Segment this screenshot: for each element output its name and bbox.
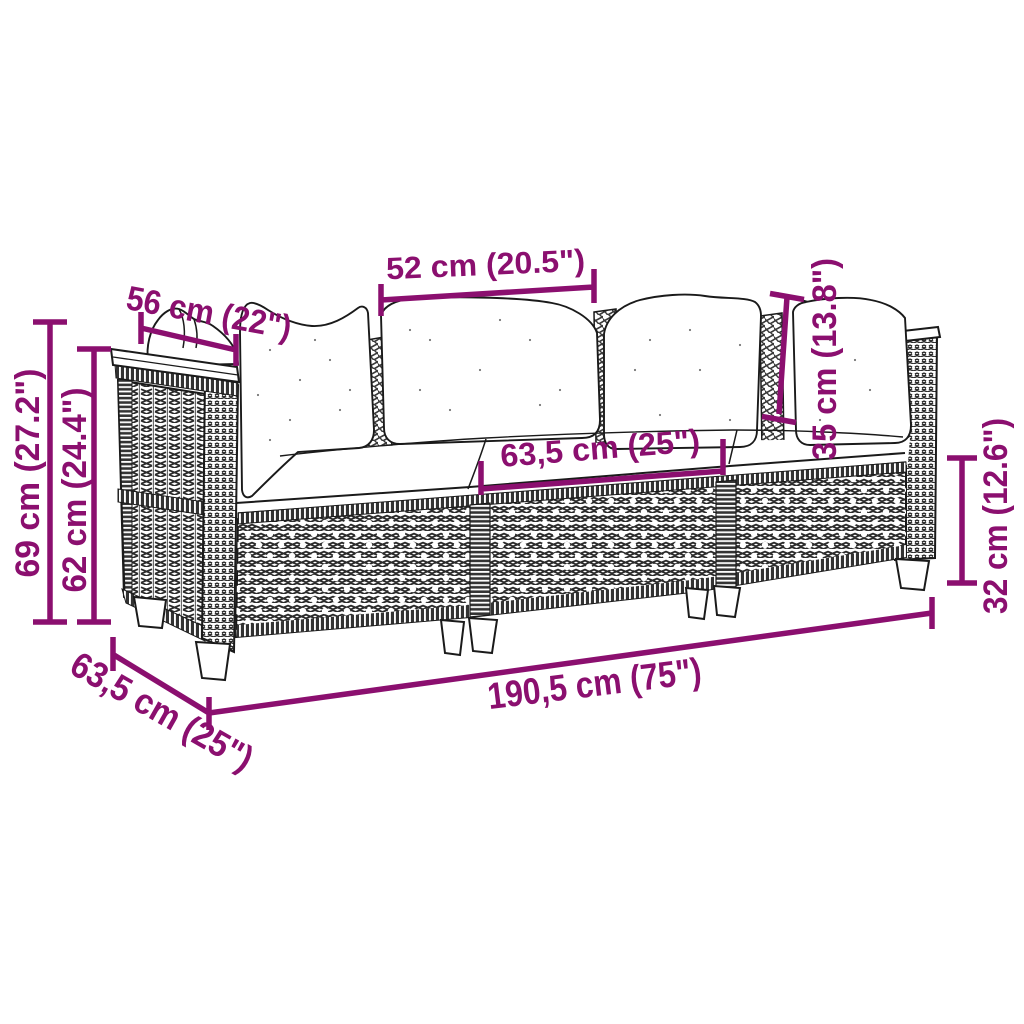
svg-text:62 cm (24.4"): 62 cm (24.4") bbox=[56, 388, 94, 593]
svg-text:32 cm (12.6"): 32 cm (12.6") bbox=[977, 418, 1015, 614]
svg-text:35 cm (13.8"): 35 cm (13.8") bbox=[806, 258, 844, 460]
svg-text:69 cm (27.2"): 69 cm (27.2") bbox=[9, 369, 47, 578]
